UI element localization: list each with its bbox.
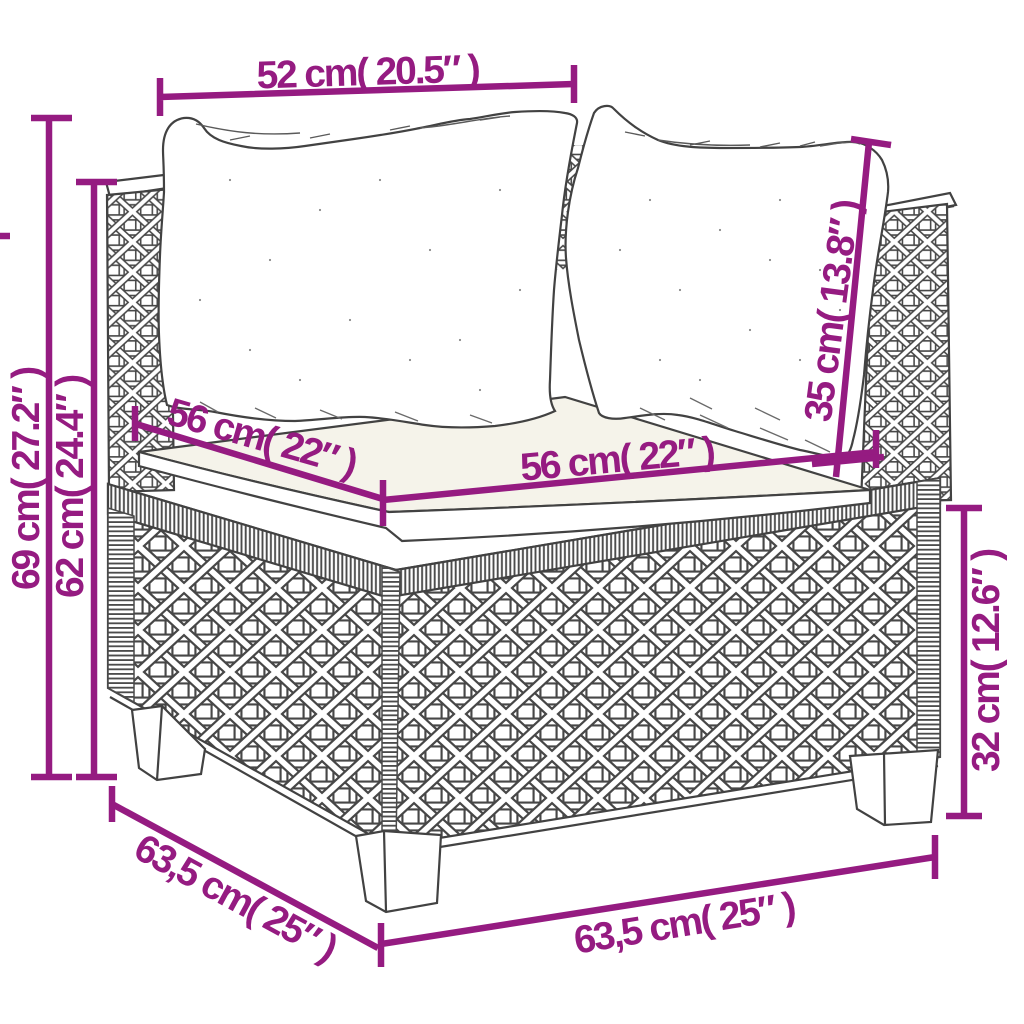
svg-text:52 cm( 20.5″ ): 52 cm( 20.5″ ) — [256, 47, 480, 97]
svg-text:32 cm( 12.6″ ): 32 cm( 12.6″ ) — [965, 549, 1008, 772]
svg-text:69 cm( 27.2″ ): 69 cm( 27.2″ ) — [5, 367, 48, 590]
svg-text:62 cm( 24.4″ ): 62 cm( 24.4″ ) — [49, 375, 92, 598]
